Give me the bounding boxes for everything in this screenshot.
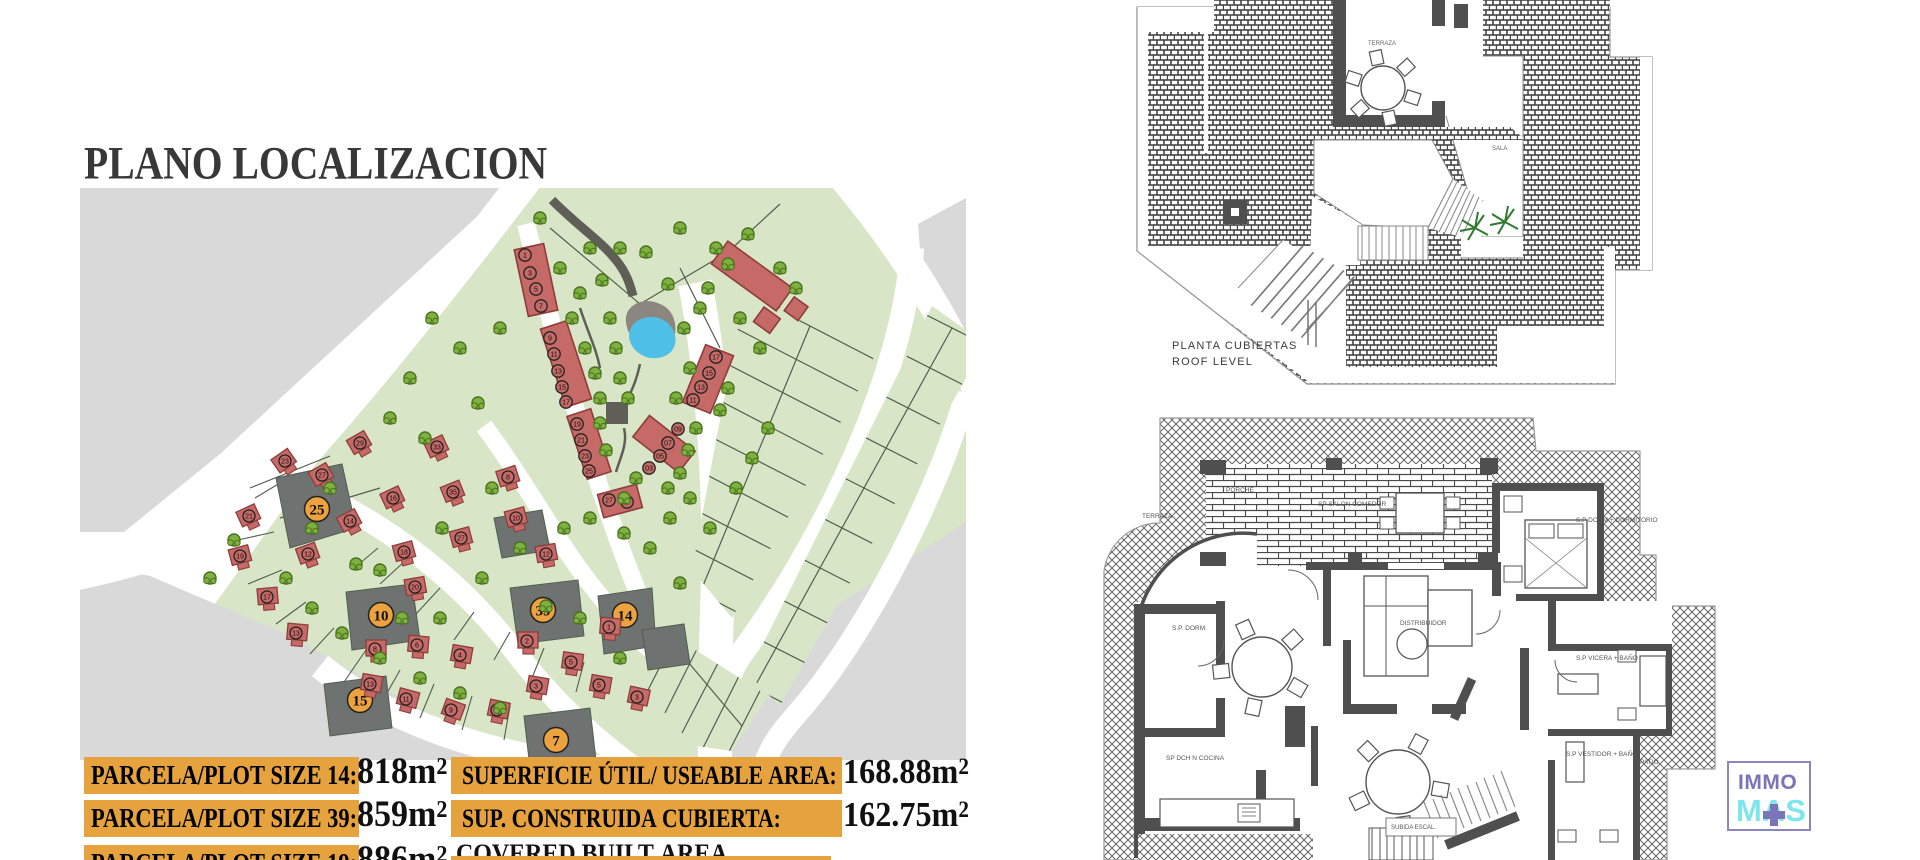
svg-text:TERRAZA: TERRAZA [1142, 513, 1173, 520]
svg-text:13: 13 [697, 384, 705, 391]
svg-text:2: 2 [525, 638, 529, 645]
svg-text:11: 11 [689, 397, 696, 404]
svg-text:S.P VESTIDOR + BAÑO: S.P VESTIDOR + BAÑO [1566, 749, 1637, 758]
svg-text:8: 8 [506, 474, 510, 481]
svg-text:23: 23 [581, 453, 589, 460]
svg-text:14: 14 [346, 518, 354, 525]
svg-text:35: 35 [449, 489, 457, 496]
svg-text:19: 19 [573, 421, 581, 428]
svg-text:07: 07 [664, 440, 672, 447]
svg-text:13: 13 [366, 681, 374, 688]
svg-text:27: 27 [605, 497, 613, 504]
svg-text:29: 29 [356, 440, 364, 447]
svg-text:11: 11 [402, 696, 409, 703]
svg-text:S.P. DORM.: S.P. DORM. [1172, 625, 1207, 632]
svg-text:25: 25 [310, 503, 325, 519]
svg-text:10: 10 [374, 609, 389, 625]
svg-text:7: 7 [552, 734, 560, 750]
svg-text:5: 5 [569, 659, 573, 666]
svg-text:S.P VICERA + BAÑO: S.P VICERA + BAÑO [1576, 653, 1638, 662]
svg-text:3: 3 [534, 683, 538, 690]
svg-text:PLANTA CUBIERTAS: PLANTA CUBIERTAS [1172, 340, 1298, 352]
svg-text:4: 4 [458, 652, 462, 659]
svg-text:13: 13 [554, 368, 562, 375]
svg-text:17: 17 [562, 399, 570, 406]
svg-text:19: 19 [236, 553, 244, 560]
svg-text:05: 05 [656, 453, 664, 460]
svg-text:S.P DORM + DORMITORIO: S.P DORM + DORMITORIO [1576, 517, 1658, 524]
svg-text:3: 3 [528, 270, 532, 277]
svg-text:16: 16 [389, 495, 397, 502]
svg-text:12: 12 [542, 551, 550, 558]
svg-text:33: 33 [433, 444, 441, 451]
svg-text:17: 17 [263, 594, 271, 601]
svg-text:SP DCH N COCINA: SP DCH N COCINA [1166, 755, 1225, 762]
svg-text:15: 15 [705, 370, 713, 377]
svg-text:SUBIDA ESCAL.: SUBIDA ESCAL. [1391, 825, 1436, 831]
svg-text:1: 1 [607, 624, 611, 631]
svg-text:SP SALON COMEDOR: SP SALON COMEDOR [1318, 501, 1386, 508]
svg-text:23: 23 [281, 458, 289, 465]
svg-text:5: 5 [597, 682, 601, 689]
svg-text:1: 1 [523, 252, 527, 259]
svg-text:PORCHE: PORCHE [1226, 487, 1254, 494]
svg-text:6: 6 [415, 642, 419, 649]
svg-text:9: 9 [449, 707, 453, 714]
svg-text:7: 7 [539, 303, 543, 310]
svg-text:11: 11 [550, 351, 557, 358]
svg-text:03: 03 [645, 465, 653, 472]
svg-text:15: 15 [558, 384, 566, 391]
svg-text:18: 18 [400, 549, 408, 556]
svg-text:20: 20 [411, 584, 419, 591]
svg-text:27: 27 [318, 472, 326, 479]
svg-text:21: 21 [245, 513, 253, 520]
svg-text:SALA: SALA [1492, 146, 1507, 152]
svg-text:PATIO: PATIO [1640, 759, 1659, 766]
svg-text:ROOF LEVEL: ROOF LEVEL [1172, 356, 1253, 368]
svg-text:17: 17 [712, 354, 720, 361]
svg-text:5: 5 [534, 286, 538, 293]
svg-text:09: 09 [674, 426, 682, 433]
svg-text:21: 21 [577, 437, 585, 444]
svg-text:DISTRIBUIDOR: DISTRIBUIDOR [1400, 620, 1447, 627]
svg-text:25: 25 [585, 468, 593, 475]
svg-text:12: 12 [304, 551, 312, 558]
svg-text:3: 3 [635, 694, 639, 701]
svg-text:TERRAZA: TERRAZA [1368, 41, 1396, 47]
svg-text:10: 10 [512, 515, 520, 522]
svg-text:9: 9 [548, 335, 552, 342]
svg-text:27: 27 [457, 535, 465, 542]
svg-text:13: 13 [292, 630, 300, 637]
